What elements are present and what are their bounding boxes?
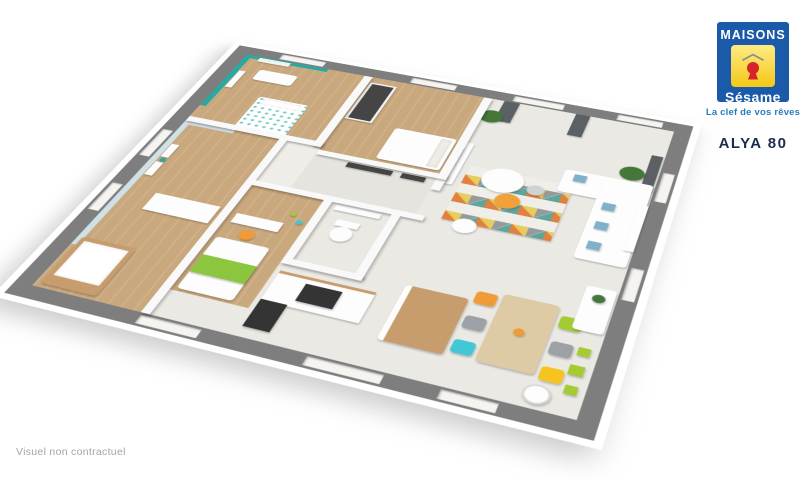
page: MAISONS Sésame La clef de vos rêves ALYA… — [0, 0, 811, 480]
logo-subtitle: Sésame — [717, 89, 789, 105]
logo-roof-icon — [741, 53, 765, 61]
brand-tagline: La clef de vos rêves — [697, 107, 809, 118]
logo-title: MAISONS — [717, 28, 789, 42]
model-name: ALYA 80 — [697, 135, 809, 152]
brand-logo: MAISONS Sésame — [717, 22, 789, 102]
disclaimer-text: Visuel non contractuel — [16, 446, 126, 458]
floor-plan-3d — [0, 41, 702, 450]
logo-key-box — [731, 45, 775, 87]
brand-block: MAISONS Sésame La clef de vos rêves ALYA… — [697, 22, 809, 152]
